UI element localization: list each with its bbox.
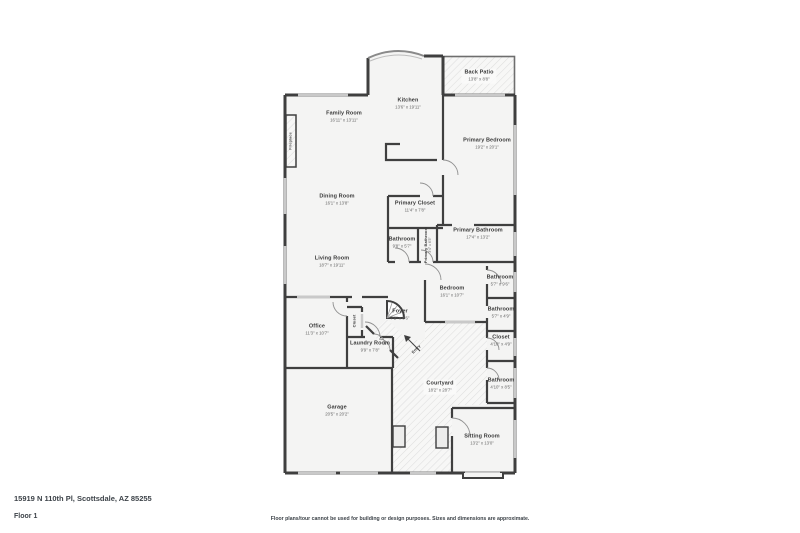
room-dims: 9'9" x 7'8" (350, 348, 390, 354)
room-name: Bathroom (389, 237, 416, 244)
room-dims: 5'7" x 4'9" (488, 314, 515, 320)
room-label-foyer: Foyer 7'2" x 8'6" (391, 309, 410, 322)
room-label-sitting-room: Sitting Room 13'2" x 13'0" (464, 434, 499, 447)
room-label-primary-closet: Primary Closet 11'4" x 7'8" (395, 201, 435, 214)
property-address: 15919 N 110th Pl, Scottsdale, AZ 85255 (14, 494, 152, 503)
room-name: Laundry Room (350, 341, 390, 348)
room-name: Back Patio (464, 70, 493, 77)
room-dims: 11'4" x 7'8" (395, 208, 435, 214)
room-name: Primary Closet (395, 201, 435, 208)
room-dims: 7'2" x 8'6" (391, 316, 410, 322)
room-label-back-patio: Back Patio 13'8" x 8'8" (461, 69, 496, 84)
room-name: Bedroom (440, 286, 465, 293)
room-dims: 17'4" x 13'2" (453, 235, 503, 241)
room-name: Sitting Room (464, 434, 499, 441)
room-name: Closet (351, 315, 356, 328)
room-label-bathroom-2: Bathroom 5'7" x 9'6" (487, 275, 514, 288)
room-label-primary-bedroom: Primary Bedroom 19'2" x 20'1" (463, 138, 511, 151)
room-label-bedroom: Bedroom 16'1" x 10'7" (440, 286, 465, 299)
room-dims: 18'7" x 19'11" (315, 263, 349, 269)
room-label-hall-closet: Closet (351, 315, 356, 328)
floor-plan-page: Back Patio 13'8" x 8'8" Kitchen 13'6" x … (0, 0, 800, 533)
room-dims: 9'8" x 5'7" (389, 244, 416, 250)
room-label-bathroom-4: Bathroom 4'10" x 8'5" (488, 378, 515, 391)
room-dims: 16'11" x 13'11" (326, 118, 362, 124)
room-name: Primary Bathroom (453, 228, 503, 235)
room-dims: 3'4" x 6'3" (428, 227, 433, 264)
room-name: Bathroom (487, 275, 514, 282)
room-label-fireplace: Fireplace (289, 132, 294, 150)
room-dims: 16'1" x 13'8" (319, 201, 354, 207)
room-dims: 4'10" x 4'9" (490, 342, 511, 348)
room-name: Closet (490, 335, 511, 342)
room-name: Dining Room (319, 194, 354, 201)
room-label-dining-room: Dining Room 16'1" x 13'8" (319, 194, 354, 207)
room-label-courtyard: Courtyard 18'2" x 28'7" (423, 380, 456, 395)
room-dims: 13'8" x 8'8" (464, 77, 493, 83)
disclaimer-text: Floor plans/tour cannot be used for buil… (0, 516, 800, 522)
floor-plan-drawing (0, 0, 800, 533)
room-name: Primary Bedroom (463, 138, 511, 145)
room-name: Bathroom (488, 378, 515, 385)
room-label-bathroom-1: Bathroom 9'8" x 5'7" (389, 237, 416, 250)
room-dims: 11'3" x 10'7" (305, 331, 328, 337)
courtyard-pillar (393, 426, 405, 447)
room-name: Kitchen (395, 98, 421, 105)
room-dims: 13'2" x 13'0" (464, 441, 499, 447)
room-name: Office (305, 324, 328, 331)
room-dims: 5'7" x 9'6" (487, 282, 514, 288)
room-label-primary-bathroom: Primary Bathroom 17'4" x 13'2" (453, 228, 503, 241)
room-name: Fireplace (289, 132, 294, 150)
courtyard-pillar (436, 427, 448, 448)
room-dims: 20'5" x 20'2" (325, 412, 349, 418)
room-name: Family Room (326, 111, 362, 118)
room-name: Courtyard (426, 381, 453, 388)
room-label-primary-bathroom-small: Primary Bathroom 3'4" x 6'3" (423, 227, 433, 264)
room-label-closet-2: Closet 4'10" x 4'9" (490, 335, 511, 348)
room-name: Bathroom (488, 307, 515, 314)
room-label-laundry-room: Laundry Room 9'9" x 7'8" (350, 341, 390, 354)
room-dims: 19'2" x 20'1" (463, 145, 511, 151)
room-label-office: Office 11'3" x 10'7" (305, 324, 328, 337)
porch-step (463, 473, 503, 478)
room-label-garage: Garage 20'5" x 20'2" (325, 405, 349, 418)
room-label-bathroom-3: Bathroom 5'7" x 4'9" (488, 307, 515, 320)
room-dims: 18'2" x 28'7" (426, 388, 453, 394)
room-label-living-room: Living Room 18'7" x 19'11" (315, 256, 349, 269)
room-label-family-room: Family Room 16'11" x 13'11" (326, 111, 362, 124)
room-name: Foyer (391, 309, 410, 316)
room-dims: 4'10" x 8'5" (488, 385, 515, 391)
room-dims: 16'1" x 10'7" (440, 293, 465, 299)
room-label-kitchen: Kitchen 13'6" x 19'11" (395, 98, 421, 111)
room-name: Garage (325, 405, 349, 412)
room-name: Living Room (315, 256, 349, 263)
room-dims: 13'6" x 19'11" (395, 105, 421, 111)
